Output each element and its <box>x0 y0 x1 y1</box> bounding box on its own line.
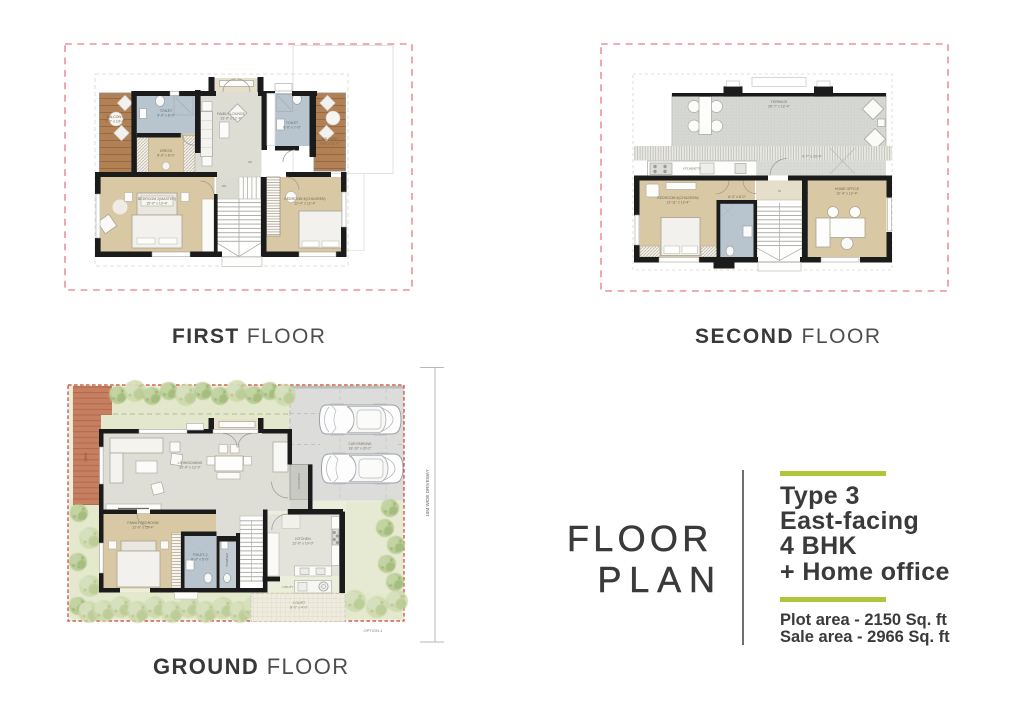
svg-text:12'-11" x 12'-4": 12'-11" x 12'-4" <box>666 201 690 205</box>
svg-text:12'-4" x 12'-4": 12'-4" x 12'-4" <box>294 202 316 206</box>
svg-text:12'-0" x 10'-0": 12'-0" x 10'-0" <box>292 542 314 546</box>
svg-text:KITCHENETTE: KITCHENETTE <box>683 167 701 171</box>
svg-text:BALCONY: BALCONY <box>107 115 124 119</box>
svg-text:6'-6" x 11'-0": 6'-6" x 11'-0" <box>320 142 340 146</box>
svg-text:18'-10" x 20'-2": 18'-10" x 20'-2" <box>349 447 373 451</box>
svg-text:LIVING/DINING: LIVING/DINING <box>178 461 203 465</box>
svg-text:IN: IN <box>778 189 781 193</box>
svg-text:OPTION-1: OPTION-1 <box>364 628 384 633</box>
svg-text:WORKAREA: WORKAREA <box>297 473 301 489</box>
svg-text:9'-7" x 20'-0": 9'-7" x 20'-0" <box>802 155 822 159</box>
svg-text:BALCONY: BALCONY <box>322 137 339 141</box>
svg-text:FAMILY BEDROOM: FAMILY BEDROOM <box>127 521 158 525</box>
svg-text:12'-4" x 12'-4": 12'-4" x 12'-4" <box>836 192 858 196</box>
svg-text:TOILET: TOILET <box>286 121 299 125</box>
svg-text:8'-0" x 7'-0": 8'-0" x 7'-0" <box>283 126 301 130</box>
svg-text:15'-0" x 13'-4": 15'-0" x 13'-4" <box>146 202 168 206</box>
svg-text:POWDER: POWDER <box>225 552 229 566</box>
svg-text:TOILET-2: TOILET-2 <box>192 553 207 557</box>
svg-text:9'-0" x 13'-4": 9'-0" x 13'-4" <box>105 120 125 124</box>
svg-text:9'-0" x 8'-0": 9'-0" x 8'-0" <box>157 114 175 118</box>
svg-text:TERRACE: TERRACE <box>771 100 788 104</box>
svg-text:10M WIDE DRIVEWAY: 10M WIDE DRIVEWAY <box>425 469 430 516</box>
svg-text:FAMILY LOUNGE: FAMILY LOUNGE <box>217 112 246 116</box>
svg-text:COURT: COURT <box>293 601 306 605</box>
svg-text:13'-0" x 12'-4": 13'-0" x 12'-4" <box>220 117 242 121</box>
svg-text:BEDROOM 4(CHILDREN): BEDROOM 4(CHILDREN) <box>657 196 698 200</box>
svg-text:UTILITY: UTILITY <box>282 585 293 589</box>
svg-text:DRESS: DRESS <box>160 149 173 153</box>
svg-text:CAR PARKING: CAR PARKING <box>348 442 371 446</box>
svg-text:8'-0" x 5'-0": 8'-0" x 5'-0" <box>191 558 209 562</box>
svg-text:8'-0" x 4'-0": 8'-0" x 4'-0" <box>290 606 308 610</box>
svg-text:UP: UP <box>248 160 252 164</box>
svg-text:DN: DN <box>222 184 226 188</box>
svg-text:BEDROOM 2(MASTER): BEDROOM 2(MASTER) <box>138 197 176 201</box>
svg-text:TOILET: TOILET <box>160 109 173 113</box>
svg-text:KITCHEN: KITCHEN <box>295 537 311 541</box>
svg-text:DECK: DECK <box>84 452 88 462</box>
svg-text:BEDROOM 3(CHILDREN): BEDROOM 3(CHILDREN) <box>284 197 325 201</box>
svg-text:26'-7" x 12'-4": 26'-7" x 12'-4" <box>768 105 790 109</box>
svg-text:12'-0" x 13'-4": 12'-0" x 13'-4" <box>132 526 154 530</box>
svg-text:20'-0" x 12'-0": 20'-0" x 12'-0" <box>179 466 201 470</box>
svg-text:6'-0" x 8'-0": 6'-0" x 8'-0" <box>728 195 746 199</box>
svg-text:HOME OFFICE: HOME OFFICE <box>835 187 860 191</box>
svg-text:8'-0" x 8'-0": 8'-0" x 8'-0" <box>157 154 175 158</box>
